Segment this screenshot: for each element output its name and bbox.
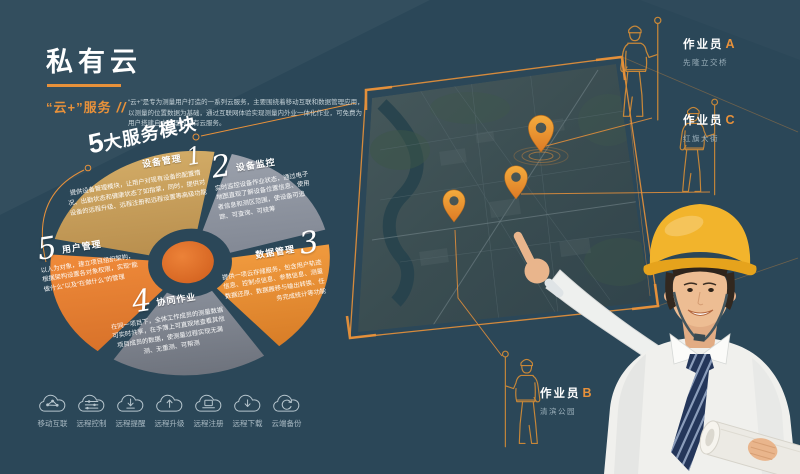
feature-remote-reminder: 远程提醒 — [112, 393, 149, 429]
cloud-arrow-down-icon — [233, 393, 263, 415]
worker-role: 作业员 — [683, 115, 724, 127]
module-number: 1 — [185, 146, 203, 166]
subtitle-text: “云+”服务 — [46, 100, 112, 115]
surveyor-sketch-a — [621, 17, 661, 120]
worker-location: 先隆立交桥 — [683, 57, 737, 68]
feature-label: 移动互联 — [34, 418, 71, 429]
cloud-arrow-down-line-icon — [116, 393, 146, 415]
module-number: 4 — [131, 290, 153, 315]
worker-callout-b: 作业员B 清滨公园 — [540, 385, 594, 417]
worker-letter: C — [726, 113, 737, 127]
feature-cloud-backup: 云端备份 — [268, 393, 305, 429]
module-name: 协同作业 — [155, 289, 197, 311]
module-name: 设备监控 — [235, 154, 277, 176]
feature-label: 云端备份 — [268, 418, 305, 429]
feature-remote-upgrade: 远程升级 — [151, 393, 188, 429]
module-name: 用户管理 — [61, 236, 103, 258]
cloud-laptop-icon — [194, 393, 224, 415]
worker-callout-a: 作业员A 先隆立交桥 — [683, 36, 737, 68]
cloud-sliders-icon — [77, 393, 107, 415]
module-number: 3 — [298, 231, 320, 256]
feature-label: 远程控制 — [73, 418, 110, 429]
feature-remote-download: 远程下载 — [229, 393, 266, 429]
page-subtitle: “云+”服务// — [46, 97, 126, 116]
page-title: 私有云 — [46, 40, 142, 79]
worker-location: 红旗大街 — [683, 133, 737, 144]
cloud-arrow-up-icon — [155, 393, 185, 415]
feature-mobile-network: 移动互联 — [34, 393, 71, 429]
feature-remote-control: 远程控制 — [73, 393, 110, 429]
feature-label: 远程下载 — [229, 418, 266, 429]
wheel-center — [160, 239, 216, 286]
worker-letter: A — [726, 37, 737, 51]
title-underline — [47, 84, 121, 87]
hard-hat — [643, 204, 756, 275]
module-name: 设备管理 — [141, 151, 183, 173]
module-number: 5 — [36, 237, 58, 262]
worker-role: 作业员 — [683, 39, 724, 51]
worker-location: 清滨公园 — [540, 406, 594, 417]
feature-label: 远程注册 — [190, 418, 227, 429]
cloud-feature-list: 移动互联 远程控制 远程提醒 远程升级 远程注册 — [34, 393, 305, 429]
cloud-mobile-network-icon — [38, 393, 68, 415]
subtitle-slashes: // — [117, 99, 127, 115]
feature-label: 远程升级 — [151, 418, 188, 429]
worker-role: 作业员 — [540, 388, 581, 400]
feature-remote-register: 远程注册 — [190, 393, 227, 429]
worker-callout-c: 作业员C 红旗大街 — [683, 112, 737, 144]
cloud-sync-icon — [272, 393, 302, 415]
module-number: 2 — [210, 155, 232, 180]
surveyor-sketch-b — [502, 351, 539, 447]
module-name: 数据管理 — [254, 242, 296, 264]
worker-letter: B — [583, 386, 594, 400]
feature-label: 远程提醒 — [112, 418, 149, 429]
